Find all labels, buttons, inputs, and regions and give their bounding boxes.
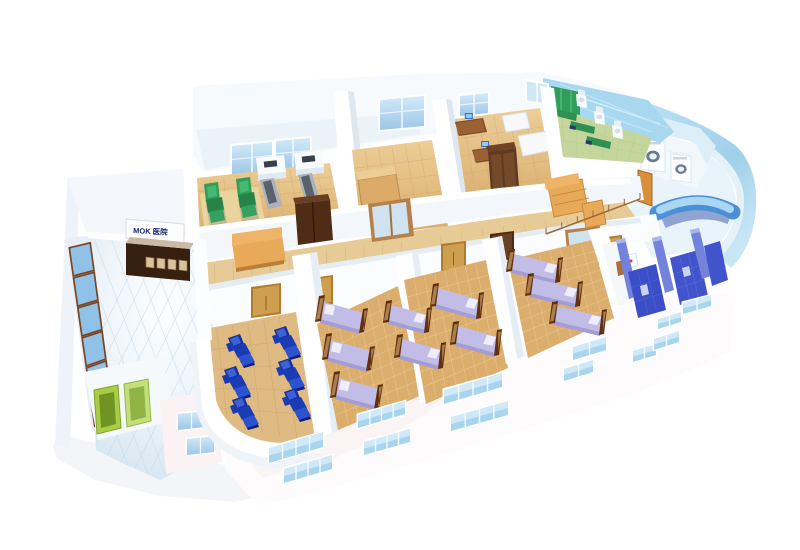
svg-text:MOK 医院: MOK 医院 <box>133 225 169 237</box>
